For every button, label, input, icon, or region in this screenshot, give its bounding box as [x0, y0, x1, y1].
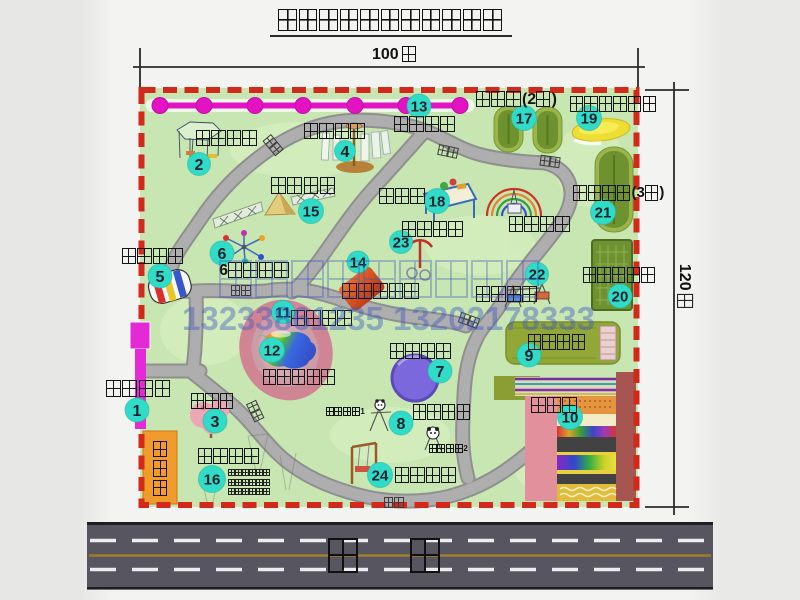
svg-text:19: 19 — [581, 110, 598, 127]
svg-text:8: 8 — [397, 416, 406, 433]
svg-text:15: 15 — [303, 203, 320, 220]
svg-text:17: 17 — [516, 110, 533, 127]
svg-text:9: 9 — [525, 348, 534, 365]
svg-text:2: 2 — [195, 157, 204, 174]
svg-text:20: 20 — [612, 288, 629, 305]
svg-text:24: 24 — [372, 467, 389, 484]
svg-text:13: 13 — [411, 98, 428, 115]
svg-text:18: 18 — [429, 193, 446, 210]
svg-text:16: 16 — [204, 471, 221, 488]
svg-text:1: 1 — [133, 403, 142, 420]
svg-text:12: 12 — [264, 342, 281, 359]
svg-text:5: 5 — [156, 269, 165, 286]
svg-text:3: 3 — [211, 414, 220, 431]
svg-text:7: 7 — [436, 364, 445, 381]
svg-text:21: 21 — [595, 204, 612, 221]
svg-text:4: 4 — [341, 144, 350, 161]
